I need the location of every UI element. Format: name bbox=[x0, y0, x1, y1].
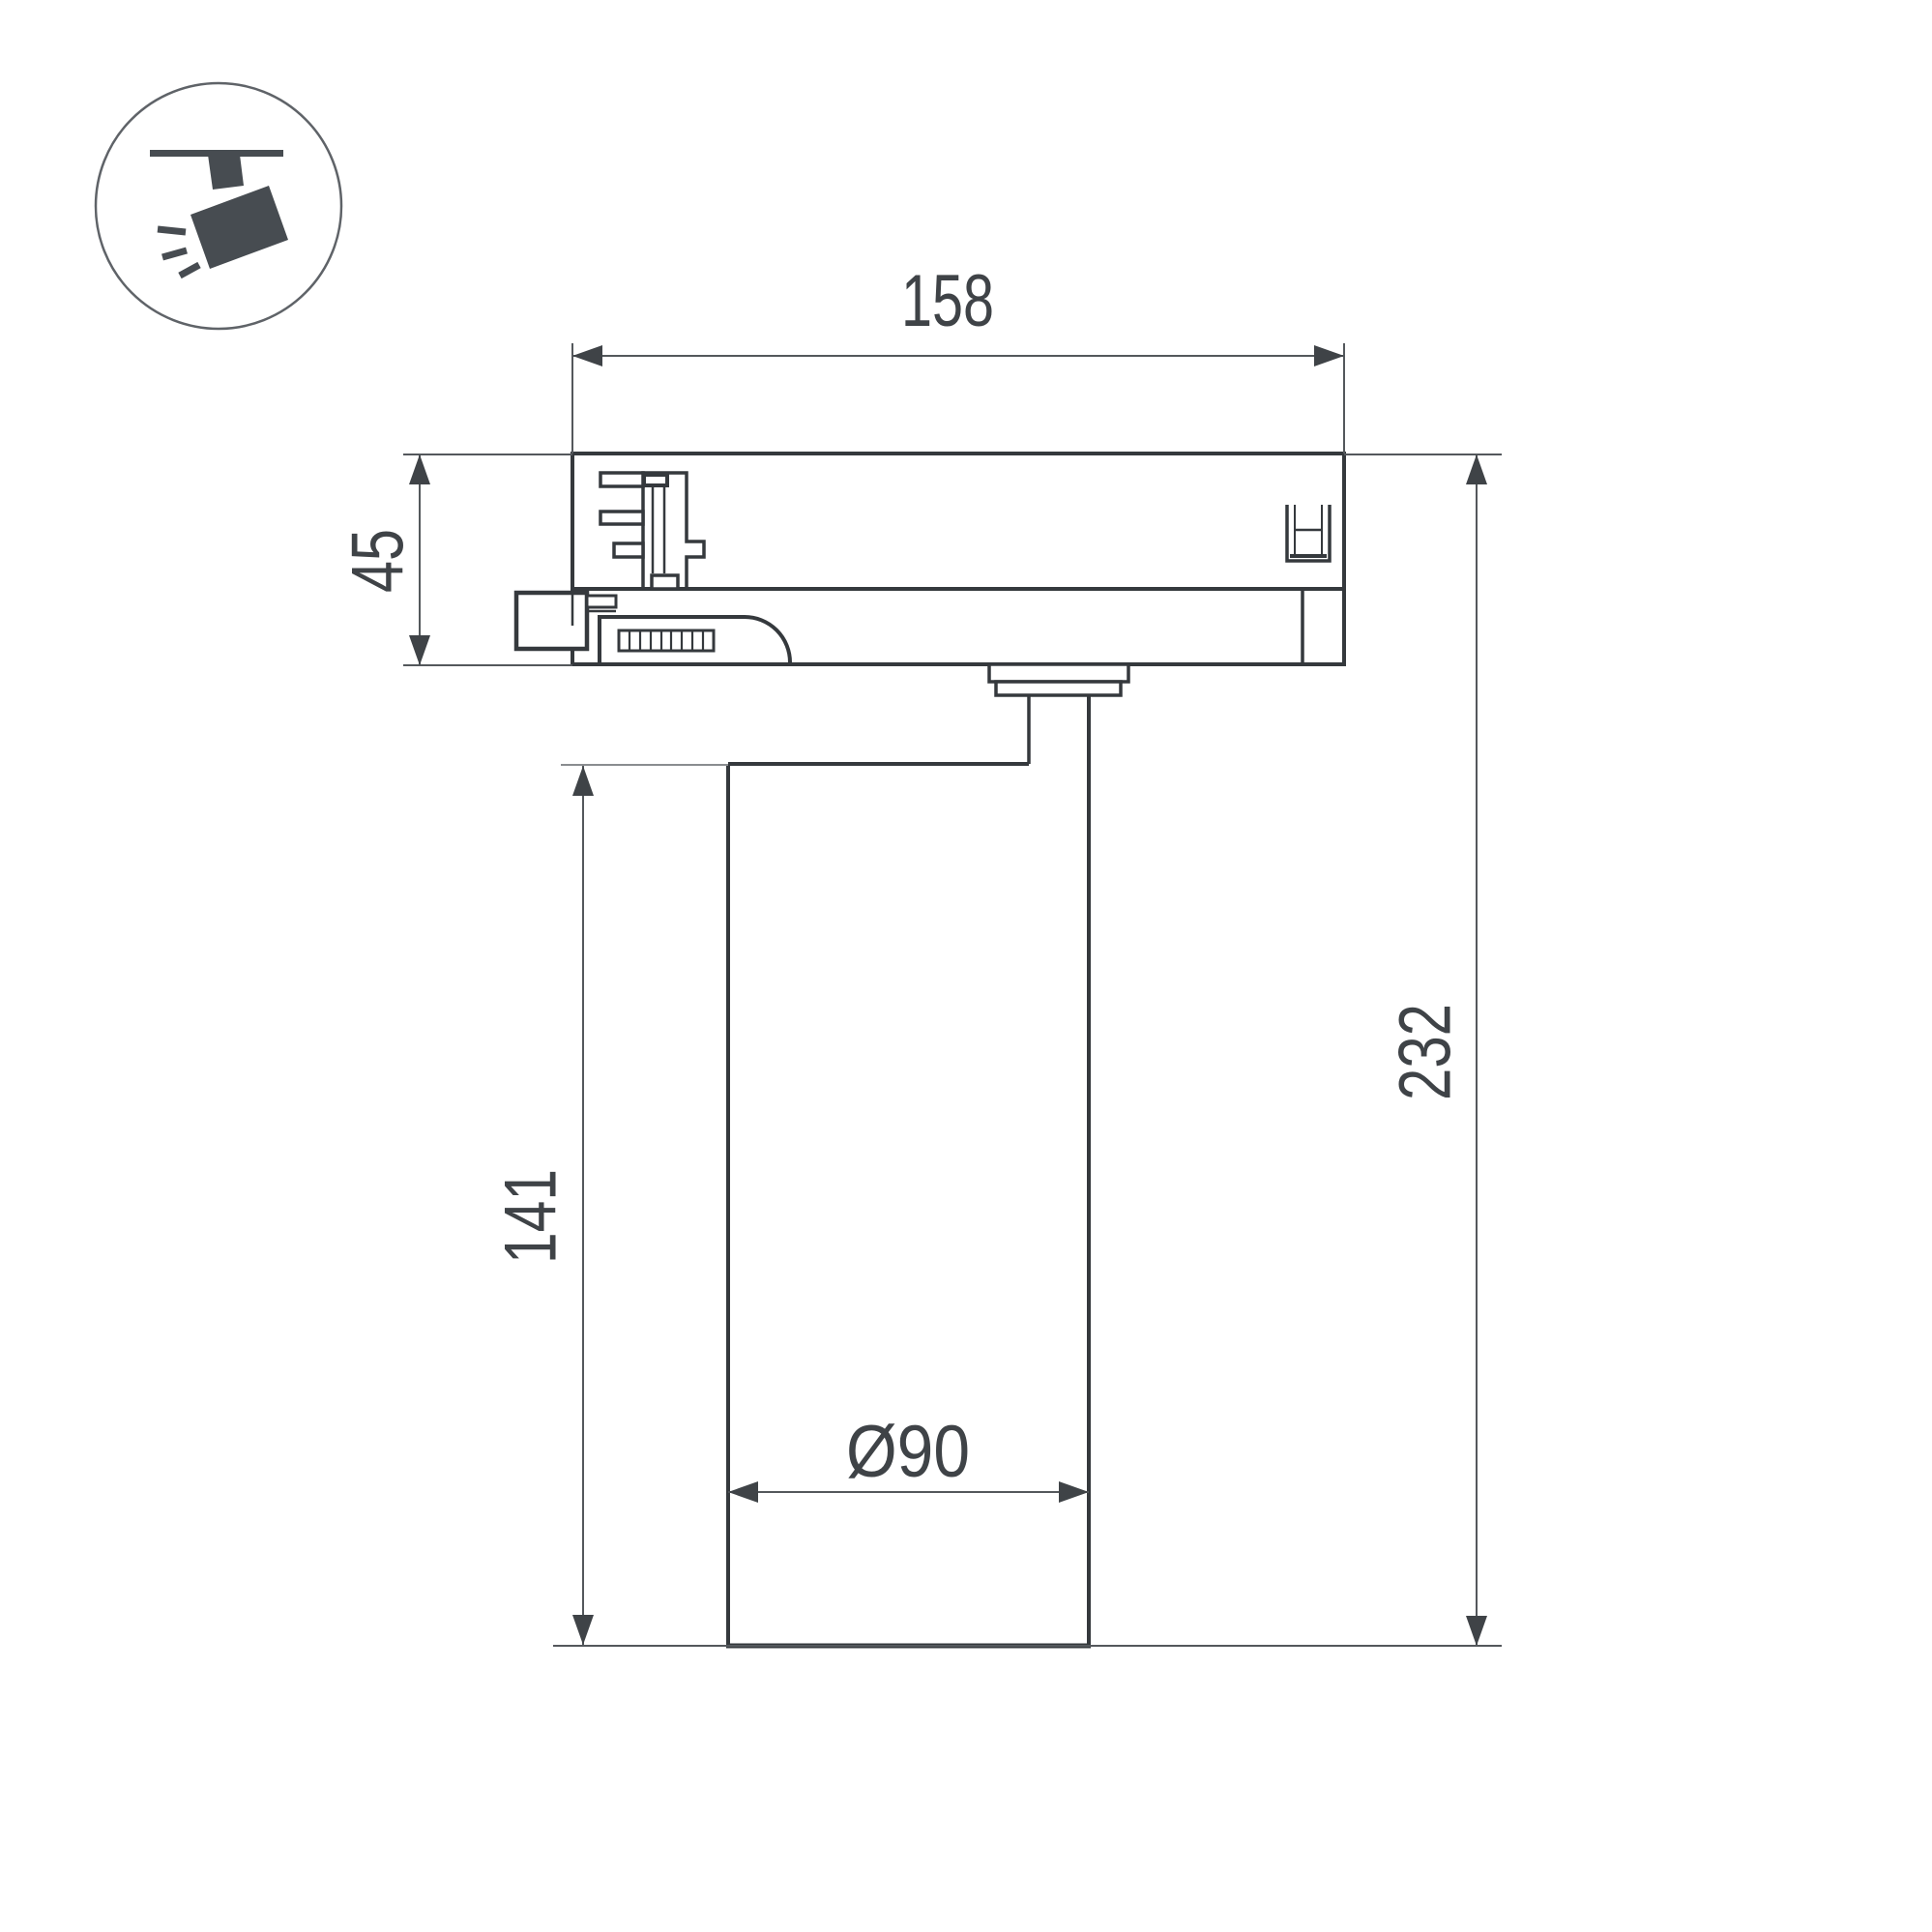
swivel-neck bbox=[989, 664, 1128, 764]
arrow-right bbox=[1059, 1481, 1089, 1503]
contact-cap bbox=[644, 475, 667, 485]
contact-prong-bottom bbox=[614, 543, 643, 557]
neck-step-1 bbox=[989, 664, 1128, 682]
arrow-up bbox=[572, 766, 594, 796]
track-spotlight-icon bbox=[96, 83, 341, 329]
arrow-left bbox=[728, 1481, 758, 1503]
lamp-body bbox=[726, 695, 1091, 1646]
dimension-body-height: 141 bbox=[490, 765, 729, 1645]
clamp-box bbox=[516, 593, 587, 649]
icon-stem bbox=[208, 155, 244, 190]
arrow-down bbox=[572, 1615, 594, 1645]
dim-label-diameter: Ø90 bbox=[846, 1411, 970, 1493]
neck-step-2 bbox=[996, 682, 1121, 695]
clamp-tab bbox=[587, 596, 616, 607]
contact-prong-middle bbox=[600, 512, 643, 524]
dim-label-141: 141 bbox=[490, 1169, 572, 1264]
dim-label-232: 232 bbox=[1385, 1004, 1467, 1100]
dimension-total-height: 232 bbox=[1344, 454, 1502, 1646]
icon-lamp-head bbox=[190, 186, 288, 269]
track-adapter bbox=[516, 454, 1344, 664]
arrow-up bbox=[409, 454, 430, 484]
contact-prong-top bbox=[600, 473, 643, 486]
icon-light-rays bbox=[158, 229, 199, 276]
arrow-down bbox=[409, 635, 430, 665]
dim-label-45: 45 bbox=[337, 529, 420, 593]
technical-drawing-page: 158 45 232 141 Ø90 bbox=[0, 0, 1932, 1932]
dimension-track-width: 158 bbox=[572, 260, 1344, 454]
arrow-up bbox=[1466, 454, 1487, 484]
dimension-body-diameter: Ø90 bbox=[728, 1411, 1089, 1503]
contact-foot bbox=[652, 575, 678, 589]
dim-label-158: 158 bbox=[901, 260, 994, 342]
arrow-left bbox=[572, 345, 602, 366]
drawing-svg: 158 45 232 141 Ø90 bbox=[0, 0, 1932, 1932]
arrow-down bbox=[1466, 1616, 1487, 1646]
arrow-right bbox=[1314, 345, 1344, 366]
